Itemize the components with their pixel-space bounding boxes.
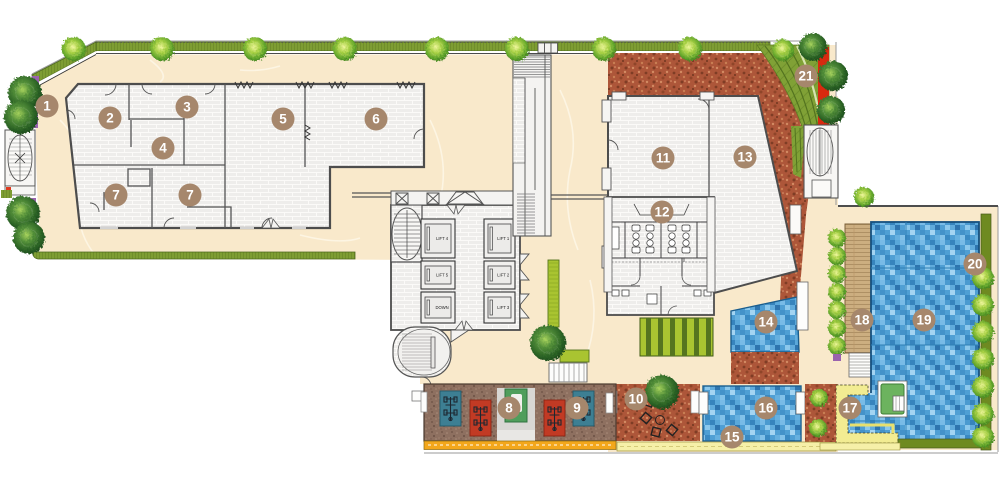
svg-text:10: 10 <box>628 392 643 407</box>
svg-text:17: 17 <box>842 401 857 416</box>
svg-text:19: 19 <box>916 313 931 328</box>
svg-text:11: 11 <box>656 151 671 166</box>
svg-text:6: 6 <box>372 112 380 127</box>
svg-text:4: 4 <box>159 141 167 156</box>
svg-text:8: 8 <box>505 401 513 416</box>
svg-text:1: 1 <box>43 99 51 114</box>
svg-text:7: 7 <box>186 188 194 203</box>
svg-text:21: 21 <box>798 69 814 84</box>
svg-text:LIFT 2: LIFT 2 <box>497 273 510 278</box>
svg-text:3: 3 <box>183 100 191 115</box>
svg-text:14: 14 <box>758 315 774 330</box>
svg-text:18: 18 <box>854 313 870 328</box>
svg-text:LIFT 3: LIFT 3 <box>497 305 510 310</box>
svg-text:DOWN: DOWN <box>435 305 448 310</box>
svg-text:7: 7 <box>112 188 120 203</box>
svg-text:2: 2 <box>106 111 114 126</box>
svg-text:20: 20 <box>967 257 982 272</box>
svg-text:12: 12 <box>654 205 669 220</box>
svg-text:LIFT 5: LIFT 5 <box>436 273 449 278</box>
svg-text:9: 9 <box>573 401 581 416</box>
svg-text:5: 5 <box>279 112 287 127</box>
svg-text:13: 13 <box>737 150 753 165</box>
svg-text:LIFT 4: LIFT 4 <box>436 236 449 241</box>
svg-text:LIFT 1: LIFT 1 <box>497 236 510 241</box>
svg-text:15: 15 <box>724 430 740 445</box>
svg-text:16: 16 <box>758 401 774 416</box>
